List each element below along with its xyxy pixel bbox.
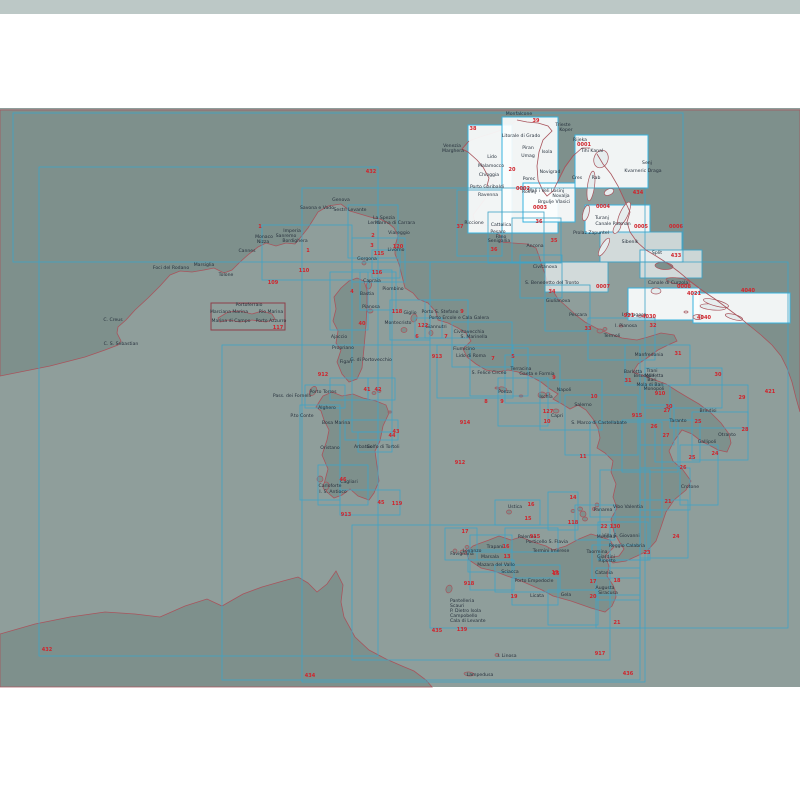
place-label: Riccione xyxy=(464,220,484,226)
island xyxy=(684,311,688,313)
place-label: Porto Ercole e Cala Galera xyxy=(429,315,489,321)
chart-number-label[interactable]: 41 xyxy=(364,387,371,393)
place-label: Oristano xyxy=(320,445,340,451)
place-label: Porto Azzurro xyxy=(256,318,287,324)
chart-number-label[interactable]: 432 xyxy=(42,647,53,653)
chart-number-label[interactable]: 0003 xyxy=(533,205,547,211)
place-label: Lido di Roma xyxy=(456,353,486,359)
chart-number-label[interactable]: 22 xyxy=(601,524,608,530)
place-label: Marsala xyxy=(481,554,499,560)
place-label: Termoli xyxy=(603,333,621,339)
chart-number-label[interactable]: 435 xyxy=(432,628,443,634)
place-label: Capraia xyxy=(363,278,381,284)
chart-number-label[interactable]: 434 xyxy=(305,673,316,679)
chart-number-label[interactable]: 27 xyxy=(664,408,671,414)
island xyxy=(571,510,575,513)
place-label: Savona e Vado xyxy=(300,205,334,211)
chart-number-label[interactable]: 434 xyxy=(633,190,644,196)
chart-number-label[interactable]: 127 xyxy=(543,409,554,415)
chart-number-label[interactable]: 436 xyxy=(623,671,634,677)
place-label: Giglio xyxy=(403,310,416,316)
place-label: Sibenik xyxy=(622,239,639,245)
place-label: Rio Marina xyxy=(259,309,284,315)
chart-number-label[interactable]: 10 xyxy=(544,419,551,425)
place-label: Cannes xyxy=(238,248,256,254)
chart-number-label[interactable]: 9 xyxy=(500,399,504,405)
place-label: Koper xyxy=(559,127,572,133)
place-label: Gela xyxy=(561,592,572,598)
chart-number-label[interactable]: 918 xyxy=(464,581,475,587)
chart-number-label[interactable]: 9 xyxy=(552,375,556,381)
chart-number-label[interactable]: 17 xyxy=(462,529,469,535)
island xyxy=(651,288,661,294)
chart-number-label[interactable]: 4030 xyxy=(642,314,656,320)
place-label: Reggio Calabria xyxy=(609,543,645,549)
place-label: Gaeta e Formia xyxy=(519,371,554,377)
place-label: Gallipoli xyxy=(698,439,716,445)
place-label: Licata xyxy=(530,593,544,599)
place-label: Vibo Valentia xyxy=(613,504,643,510)
chart-number-label[interactable]: 36 xyxy=(536,219,543,225)
chart-number-label[interactable]: 14 xyxy=(570,495,577,501)
chart-number-label[interactable]: 36 xyxy=(491,247,498,253)
chart-number-label[interactable]: 27 xyxy=(663,433,670,439)
place-label: Ischia xyxy=(539,394,552,400)
place-label: Genova xyxy=(332,197,350,203)
place-label: Kvarneric Draga xyxy=(624,168,661,174)
chart-number-label[interactable]: 120 xyxy=(393,244,404,250)
chart-number-label[interactable]: 118 xyxy=(568,520,579,526)
chart-number-label[interactable]: 0008 xyxy=(677,284,691,290)
island xyxy=(580,511,586,517)
chart-number-label[interactable]: 912 xyxy=(455,460,466,466)
chart-number-label[interactable]: 2 xyxy=(371,233,375,239)
place-label: S. Marco di Castellabate xyxy=(571,420,627,426)
chart-number-label[interactable]: 4021 xyxy=(687,291,701,297)
chart-number-label[interactable]: 0006 xyxy=(669,224,683,230)
chart-number-label[interactable]: 117 xyxy=(273,325,284,331)
chart-number-label[interactable]: 23 xyxy=(644,550,651,556)
chart-number-label[interactable]: 109 xyxy=(268,280,279,286)
chart-number-label[interactable]: 115 xyxy=(374,251,385,257)
chart-number-label[interactable]: 915 xyxy=(530,534,541,540)
place-label: Novalja xyxy=(552,193,569,199)
chart-number-label[interactable]: 1 xyxy=(306,248,310,254)
place-label: Senigallia xyxy=(488,238,510,244)
place-label: Mazara del Vallo xyxy=(477,562,515,568)
place-label: Tolone xyxy=(218,272,234,278)
chart-number-label[interactable]: 16 xyxy=(503,544,510,550)
place-label: Taranto xyxy=(668,418,686,424)
island xyxy=(388,411,392,413)
place-label: Nizza xyxy=(257,239,270,245)
place-label: Monfalcone xyxy=(506,111,533,117)
place-label: Marina di Campo xyxy=(211,318,250,324)
chart-number-label[interactable]: 18 xyxy=(614,578,621,584)
place-label: Civitanova xyxy=(533,264,558,270)
place-label: Novigrad xyxy=(540,169,561,175)
chart-number-label[interactable]: 15 xyxy=(525,516,532,522)
chart-number-label[interactable]: 910 xyxy=(655,391,666,397)
place-label: Pass. dei Fornelli xyxy=(273,393,311,399)
chart-number-label[interactable]: 37 xyxy=(457,224,464,230)
place-label: Giannutri xyxy=(425,324,446,330)
chart-catalog-page: MonfalconeTriesteKoperVeneziaMargheraLid… xyxy=(0,0,800,800)
nautical-chart-index-map: MonfalconeTriesteKoperVeneziaMargheraLid… xyxy=(0,0,800,800)
place-label: Porec xyxy=(523,176,536,182)
chart-number-label[interactable]: 21 xyxy=(665,499,672,505)
chart-number-label[interactable]: 31 xyxy=(675,351,682,357)
place-label: Brindisi xyxy=(699,408,716,414)
place-label: Prolaz Zapuntel xyxy=(573,230,609,236)
chart-number-label[interactable]: 110 xyxy=(299,268,310,274)
place-label: Cala di Levante xyxy=(450,618,486,624)
chart-number-label[interactable]: 0001 xyxy=(577,142,591,148)
chart-number-label[interactable]: 39 xyxy=(533,118,540,124)
place-label: Umag xyxy=(521,153,535,159)
chart-number-label[interactable]: 13 xyxy=(504,554,511,560)
place-label: I. S. Antioco xyxy=(319,489,347,495)
chart-number-label[interactable]: 9 xyxy=(460,309,464,315)
chart-number-label[interactable]: 10 xyxy=(591,394,598,400)
place-label: Pianosa xyxy=(362,304,380,310)
place-label: Isola xyxy=(542,149,553,155)
chart-number-label[interactable]: 118 xyxy=(392,309,403,315)
place-label: Sciacca xyxy=(501,569,519,575)
chart-number-label[interactable]: 0002 xyxy=(516,186,530,192)
chart-number-label[interactable]: 421 xyxy=(765,389,776,395)
chart-number-label[interactable]: 24 xyxy=(673,534,680,540)
chart-number-label[interactable]: 20 xyxy=(509,167,516,173)
chart-number-label[interactable]: 917 xyxy=(595,651,606,657)
place-label: Lampedusa xyxy=(467,672,494,678)
island xyxy=(401,328,407,333)
chart-number-label[interactable]: 28 xyxy=(742,427,749,433)
island xyxy=(553,409,559,413)
chart-number-label[interactable]: 32 xyxy=(650,323,657,329)
place-label: Litorale di Grado xyxy=(502,133,541,139)
chart-number-label[interactable]: 4 xyxy=(350,289,354,295)
chart-number-label[interactable]: 3 xyxy=(370,243,374,249)
chart-number-label[interactable]: 912 xyxy=(318,372,329,378)
place-label: C. S. Sebastian xyxy=(104,341,139,347)
place-label: Lido xyxy=(487,154,497,160)
place-label: Propriano xyxy=(332,345,354,351)
chart-number-label[interactable]: 7 xyxy=(491,356,495,362)
place-label: S. Marinella xyxy=(461,334,488,340)
place-label: Chioggia xyxy=(479,172,499,178)
place-label: Bastia xyxy=(360,291,374,297)
chart-number-label[interactable]: 433 xyxy=(671,253,682,259)
place-label: Manfredonia xyxy=(635,352,664,358)
chart-number-label[interactable]: 139 xyxy=(457,627,468,633)
chart-number-label[interactable]: 34 xyxy=(549,289,556,295)
place-label: P.to Conte xyxy=(290,413,313,419)
place-label: Pescara xyxy=(569,312,587,318)
place-label: Termini Imerese xyxy=(532,548,570,554)
place-label: Cres xyxy=(572,175,583,181)
place-label: Piran xyxy=(522,145,534,151)
chart-number-label[interactable]: 0007 xyxy=(596,284,610,290)
place-label: Golfo di Tortoli xyxy=(366,444,399,450)
chart-number-label[interactable]: 26 xyxy=(680,465,687,471)
chart-number-label[interactable]: 33 xyxy=(585,326,592,332)
map-top-strip xyxy=(0,0,800,14)
chart-number-label[interactable]: 40 xyxy=(359,321,366,327)
chart-number-label[interactable]: 116 xyxy=(372,270,383,276)
place-label: Piombino xyxy=(382,286,403,292)
chart-number-label[interactable]: 0005 xyxy=(634,224,648,230)
place-label: Sestri Levante xyxy=(334,207,367,213)
place-label: Favignana xyxy=(450,551,474,557)
place-label: Foci del Rodano xyxy=(153,265,189,271)
chart-number-label[interactable]: 30 xyxy=(715,372,722,378)
place-label: I. Pianosa xyxy=(615,323,637,329)
chart-number-label[interactable]: 921 xyxy=(624,313,635,319)
place-label: Marina di Carrara xyxy=(375,220,415,226)
chart-number-label[interactable]: 21 xyxy=(614,620,621,626)
island xyxy=(603,328,607,331)
place-label: Viareggio xyxy=(388,230,410,236)
chart-number-label[interactable]: 4040 xyxy=(741,288,755,294)
place-label: Otranto xyxy=(718,432,736,438)
place-label: Tihi Kanal xyxy=(580,148,603,154)
place-label: Panarea xyxy=(594,507,613,513)
place-label: I. Linosa xyxy=(497,653,516,659)
place-label: G. di Portovecchio xyxy=(350,357,392,363)
place-label: Giulianova xyxy=(546,298,571,304)
chart-number-label[interactable]: 42 xyxy=(375,387,382,393)
chart-number-label[interactable]: 15 xyxy=(553,571,560,577)
place-label: Napoli xyxy=(557,387,572,393)
chart-number-label[interactable]: 16 xyxy=(528,502,535,508)
chart-number-label[interactable]: 913 xyxy=(432,354,443,360)
chart-number-label[interactable]: 29 xyxy=(739,395,746,401)
chart-number-label[interactable]: 31 xyxy=(625,378,632,384)
chart-number-label[interactable]: 45 xyxy=(378,500,385,506)
place-label: Porto Empedocle xyxy=(515,578,554,584)
place-label: Malamocco xyxy=(478,163,504,169)
place-label: Canale Pasman xyxy=(595,221,630,227)
place-label: Montecristo xyxy=(384,320,411,326)
place-label: Fiumicino xyxy=(453,346,475,352)
chart-number-label[interactable]: 915 xyxy=(632,413,643,419)
chart-number-label[interactable]: 122 xyxy=(418,323,429,329)
place-label: Bordighera xyxy=(282,238,308,244)
place-label: Marghera xyxy=(442,148,464,154)
place-label: Salerno xyxy=(574,402,592,408)
place-label: Ustica xyxy=(508,504,522,510)
place-label: Senj xyxy=(642,160,652,166)
place-label: Ancona xyxy=(526,243,543,249)
place-label: Ajaccio xyxy=(331,334,348,340)
chart-number-label[interactable]: 119 xyxy=(392,501,403,507)
place-label: Villa S. Giovanni xyxy=(602,533,639,539)
chart-number-label[interactable]: 4040 xyxy=(697,315,711,321)
place-label: Porto Garibaldi xyxy=(470,184,504,190)
chart-number-label[interactable]: 46 xyxy=(340,477,347,483)
chart-number-label[interactable]: 7 xyxy=(444,334,448,340)
chart-number-label[interactable]: 914 xyxy=(460,420,471,426)
place-label: C. Creus xyxy=(103,317,123,323)
place-label: Alghero xyxy=(318,405,336,411)
chart-number-label[interactable]: 913 xyxy=(341,512,352,518)
place-label: Porto S. Stefano xyxy=(422,309,459,315)
place-label: S. Benedetto del Tronto xyxy=(525,280,579,286)
place-label: Catania xyxy=(595,570,613,576)
place-label: Rab xyxy=(592,175,601,181)
place-label: Marsiglia xyxy=(194,262,215,268)
chart-number-label[interactable]: 17 xyxy=(590,579,597,585)
place-label: Ponza xyxy=(498,389,512,395)
chart-number-label[interactable]: 5 xyxy=(511,354,515,360)
place-label: Bosa Marina xyxy=(322,420,350,426)
chart-number-label[interactable]: 0004 xyxy=(596,204,610,210)
chart-number-label[interactable]: 11 xyxy=(580,454,587,460)
place-label: Crotone xyxy=(681,484,699,490)
place-label: Carloforte xyxy=(319,483,342,489)
chart-number-label[interactable]: 432 xyxy=(366,169,377,175)
chart-number-label[interactable]: 130 xyxy=(610,524,621,530)
chart-number-label[interactable]: 38 xyxy=(470,126,477,132)
chart-number-label[interactable]: 25 xyxy=(695,419,702,425)
place-label: Cattolica xyxy=(491,222,512,228)
island xyxy=(597,329,603,333)
place-label: Split xyxy=(652,250,662,256)
place-label: Siracusa xyxy=(598,590,618,596)
place-label: Taormina xyxy=(586,549,608,555)
place-label: Ravenna xyxy=(478,192,498,198)
chart-number-label[interactable]: 24 xyxy=(712,451,719,457)
chart-number-label[interactable]: 1 xyxy=(258,224,262,230)
chart-number-label[interactable]: 20 xyxy=(590,594,597,600)
place-label: Portoferraio xyxy=(236,302,263,308)
chart-number-label[interactable]: 8 xyxy=(484,399,488,405)
place-label: S. Felice Circeo xyxy=(472,370,507,376)
chart-number-label[interactable]: 26 xyxy=(651,424,658,430)
chart-number-label[interactable]: 44 xyxy=(389,433,396,439)
island xyxy=(507,510,512,514)
chart-number-label[interactable]: 35 xyxy=(551,238,558,244)
chart-number-label[interactable]: 19 xyxy=(511,594,518,600)
place-label: Turanj xyxy=(594,215,609,221)
chart-number-label[interactable]: 25 xyxy=(689,455,696,461)
place-label: Trapani xyxy=(486,544,504,550)
chart-number-label[interactable]: 6 xyxy=(415,334,419,340)
place-label: Marciana Marina xyxy=(210,309,248,315)
place-label: Porto Torres xyxy=(309,389,337,395)
island xyxy=(583,517,588,521)
